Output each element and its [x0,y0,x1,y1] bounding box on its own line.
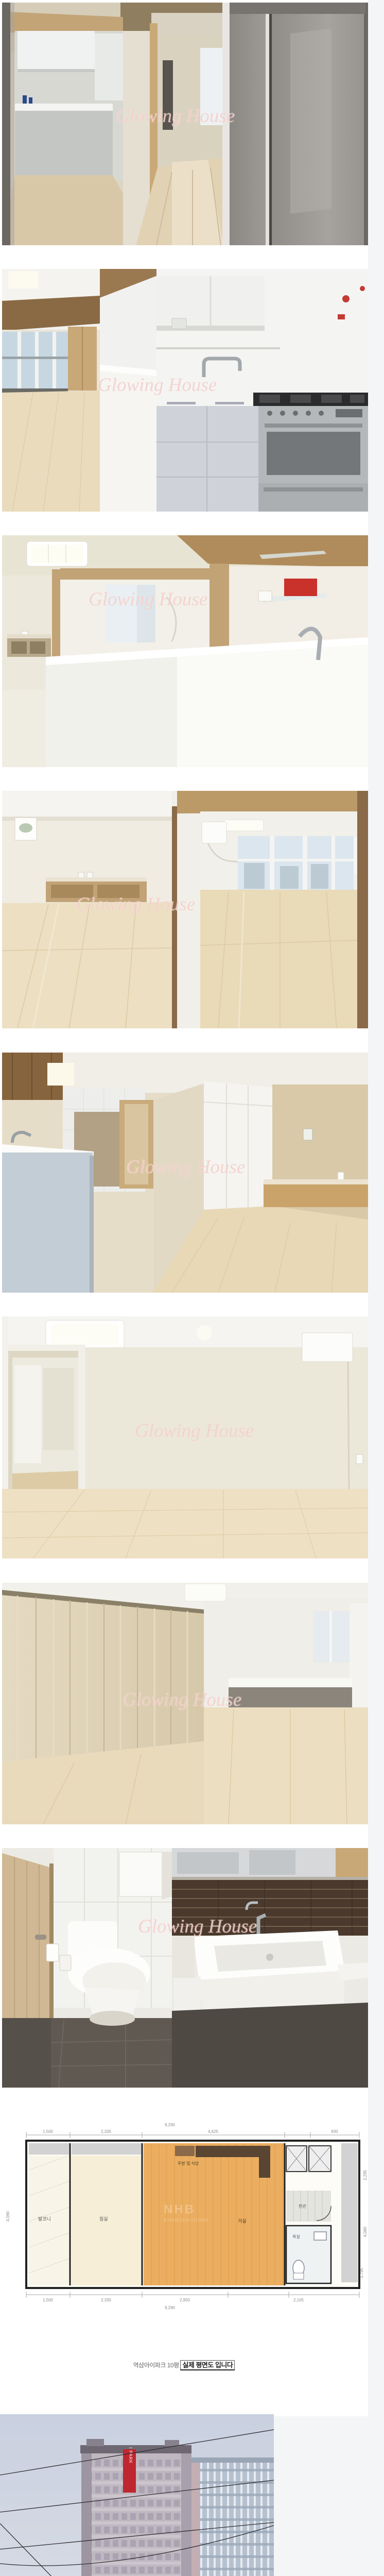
svg-text:4,090: 4,090 [6,2211,10,2222]
svg-text:현관: 현관 [299,2204,306,2209]
svg-text:I PARK: I PARK [128,2447,133,2464]
svg-text:9,290: 9,290 [165,2123,176,2127]
svg-text:1,500: 1,500 [43,2298,54,2302]
svg-text:NHB: NHB [164,2202,195,2216]
svg-text:2,295: 2,295 [363,2170,368,2180]
svg-text:2,950: 2,950 [180,2298,190,2302]
svg-text:9,290: 9,290 [165,2306,176,2310]
svg-text:욕실: 욕실 [292,2234,300,2239]
svg-text:2,335: 2,335 [101,2298,112,2302]
svg-text:4,625: 4,625 [208,2129,219,2134]
svg-text:2,105: 2,105 [293,2298,304,2302]
svg-text:발코니: 발코니 [38,2216,51,2222]
svg-text:주방 및 식당: 주방 및 식당 [178,2161,199,2166]
svg-text:2,335: 2,335 [101,2129,112,2134]
svg-text:1,500: 1,500 [43,2129,54,2134]
svg-text:4,080: 4,080 [363,2226,368,2237]
svg-text:거실: 거실 [238,2218,247,2224]
svg-text:830: 830 [331,2129,338,2134]
svg-text:침실: 침실 [99,2216,108,2222]
svg-text:BUSINESS PLATFORM: BUSINESS PLATFORM [164,2218,208,2223]
